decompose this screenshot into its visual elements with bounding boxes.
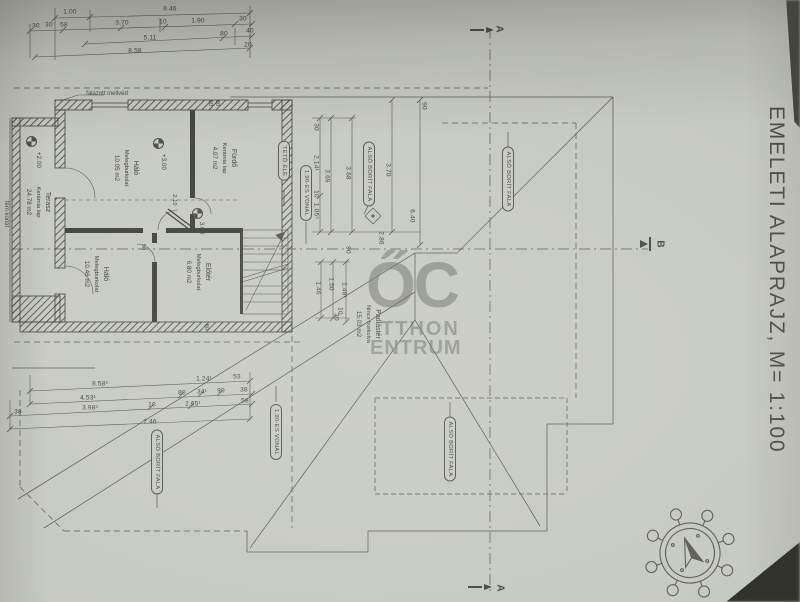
dim-label: 80 [207,100,213,107]
room-name: Háló [130,150,140,186]
level-mark-label: +3.00 [160,154,166,170]
dim-label: 3.70 [385,163,392,176]
dim-label: 2.10 [171,194,177,206]
dim-label: 38 [14,409,22,416]
room-name: Háló [100,256,110,292]
room-finish: Kerámia lap [219,143,227,174]
dim-label: 1.05⁵ [313,203,320,219]
room-finish: Nincs burkolva [363,305,371,343]
dim-label: 3.69 [324,169,331,182]
level-mark-icon [192,208,203,219]
dim-label: 90 [345,246,352,254]
dim-label: 1.24¹ [196,376,212,383]
dim-label: 30 [313,123,320,131]
roof-note-capsule: 1.90-ES VONAL [300,165,312,221]
dim-label: 3.98³ [82,405,98,412]
roof-note-capsule: ALSÓ BORÍT FALA [444,417,456,482]
dim-label: 4.53¹ [80,395,96,402]
level-mark-icon [153,138,164,149]
dim-label: 8.58 [128,48,141,55]
dim-label: 30 [333,313,340,321]
dim-label: 1.90 [191,18,204,25]
dim-label: 10 [159,19,167,26]
roof-note-capsule: ALSÓ BORÍT FALA [502,147,514,212]
dim-label: 20 [244,42,252,49]
dim-label: 1.00 [63,9,76,16]
north-compass-icon [630,493,749,602]
drawing-photo: 1.008.463030583.70101.90305.1180408.5820… [0,0,800,602]
roof-note-capsule: ALSÓ BORÍT FALA [363,142,375,207]
level-mark-icon [26,136,37,147]
room-name: Fürdő [228,143,238,174]
dim-label: 8.46 [163,6,176,13]
dim-label: 80 [178,390,186,397]
dim-label: 2.14¹ [313,155,320,171]
room-label: PadlástérNincs burkolva15.03 m2 [354,305,382,343]
room-finish: Kerámia lap [33,187,41,218]
dim-label: 80 [220,31,228,38]
dim-label: 53 [233,374,241,381]
room-label: HálóMelegburkolat10.46 m2 [82,256,110,292]
section-marker-b: B [655,240,666,247]
dim-label: 2.86 [378,231,385,244]
roof-note-capsule: 1.90-ES VONAL [270,404,282,460]
dim-label: 40 [246,28,254,35]
plan-note: fém korlát [3,201,9,227]
dim-label: 90 [140,244,146,251]
dim-label: 2.65¹ [185,401,201,408]
room-area: 4.07 m2 [210,143,219,174]
dim-label: 3.68 [345,166,352,179]
room-area: 15.03 m2 [354,305,363,343]
room-label: ElőtérMelegburkolat6.80 m2 [184,254,212,290]
dim-label: 90 [421,102,428,110]
room-area: 10.46 m2 [82,256,91,292]
section-marker-a: A [495,584,506,591]
room-finish: Melegburkolat [91,256,99,292]
dim-label: 58 [60,22,68,29]
dim-label: 80 [214,100,220,107]
dim-label: 7.46 [143,419,156,426]
room-area: 6.80 m2 [184,254,193,290]
room-area: 10.05 m2 [112,150,121,186]
section-marker-symbols [468,27,650,590]
room-finish: Melegburkolat [193,254,201,290]
roof-note-capsule: ALSÓ BORÍT FALA [151,430,163,495]
dim-label: 10 [313,190,320,198]
dim-label: 6.40 [409,209,416,222]
level-mark-label: 3.00 [198,222,204,234]
dim-label: 30 [32,23,40,30]
dim-label: 30 [239,16,247,23]
dim-label: 1.48¹ [341,282,348,298]
room-name: Terasz [42,187,52,218]
room-label: TeraszKerámia lap24.78 m2 [24,187,52,218]
drawing-title: EMELETI ALAPRAJZ, M= 1:100 [764,106,788,453]
section-marker-a: A [494,25,505,32]
room-label: HálóMelegburkolat10.05 m2 [112,150,140,186]
dim-label: 3.70 [115,20,128,27]
roof-lines [12,28,648,592]
room-name: Padlástér [372,305,382,343]
dim-label: 8.58³ [92,381,108,388]
dim-label: 58 [241,398,249,405]
level-mark-label: +2.00 [35,152,41,168]
room-finish: Melegburkolat [121,150,129,186]
dim-label: 5.11 [144,35,157,42]
room-area: 24.78 m2 [24,187,33,218]
dim-label: 1.46 [315,281,322,294]
dim-label: 80 [203,324,209,331]
dim-label: 30 [45,22,53,29]
dim-label: 90 [217,388,225,395]
dim-label: 10 [148,402,156,409]
dim-label: 38 [240,387,248,394]
dim-label: 34¹ [197,389,207,396]
plan-note: falazott mellvéd [86,91,128,97]
room-name: Előtér [202,254,212,290]
room-label: FürdőKerámia lap4.07 m2 [210,143,238,174]
roof-note-capsule: TETŐ ÉLE [278,141,290,181]
floor-plan-walls [10,100,292,332]
dim-label: 1.50 [328,277,335,290]
